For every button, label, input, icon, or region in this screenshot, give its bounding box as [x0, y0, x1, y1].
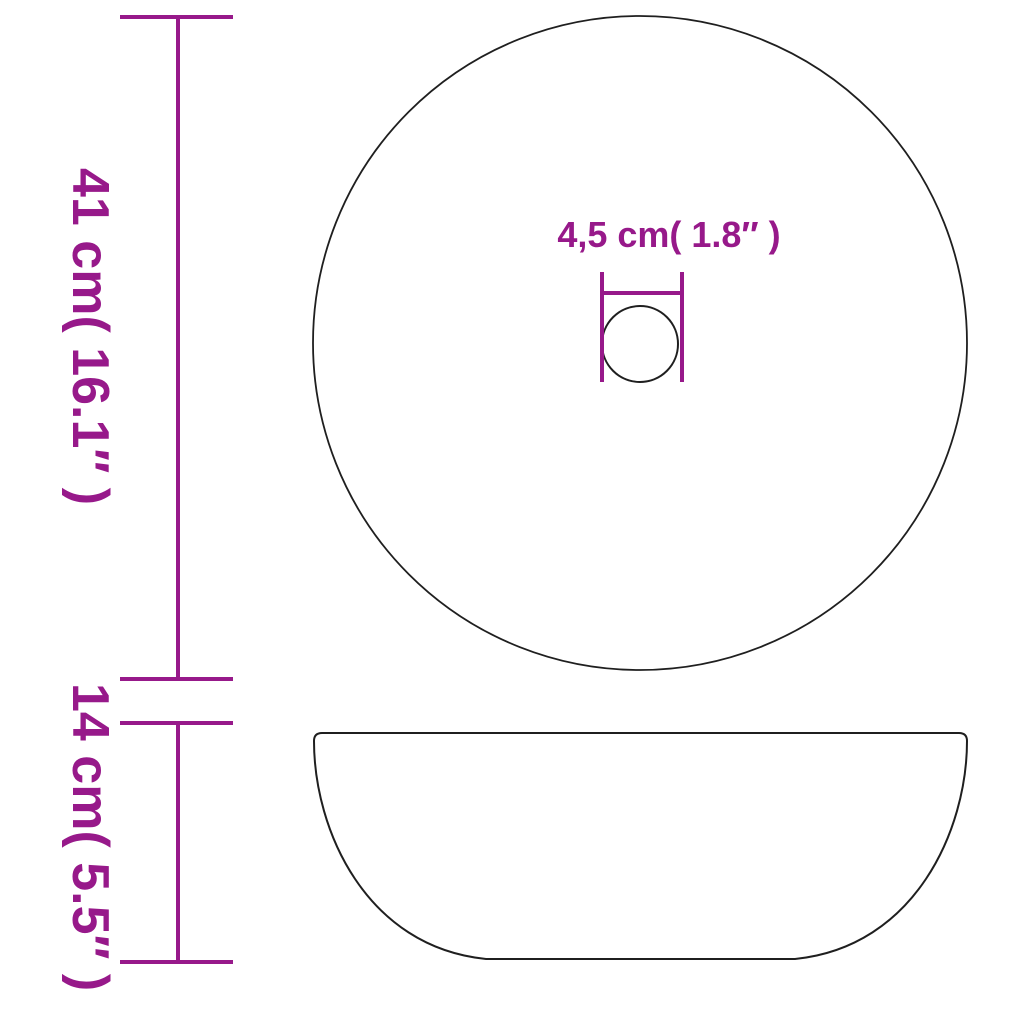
height-dimension: 14 cm( 5.5″ )	[61, 683, 233, 991]
drain-dimension-label: 4,5 cm( 1.8″ )	[557, 214, 780, 255]
basin-profile-outline	[314, 733, 967, 959]
drain-dimension: 4,5 cm( 1.8″ )	[557, 214, 780, 382]
diagram-canvas: 41 cm( 16.1″ ) 14 cm( 5.5″ ) 4,5 cm( 1.8…	[0, 0, 1024, 1024]
drain-hole-circle	[602, 306, 678, 382]
side-view	[314, 733, 967, 959]
basin-rim-circle	[313, 16, 967, 670]
height-dimension-label: 14 cm( 5.5″ )	[61, 683, 119, 991]
dimension-diagram: 41 cm( 16.1″ ) 14 cm( 5.5″ ) 4,5 cm( 1.8…	[0, 0, 1024, 1024]
diameter-dimension: 41 cm( 16.1″ )	[61, 17, 233, 679]
diameter-dimension-label: 41 cm( 16.1″ )	[61, 168, 119, 505]
top-view	[313, 16, 967, 670]
